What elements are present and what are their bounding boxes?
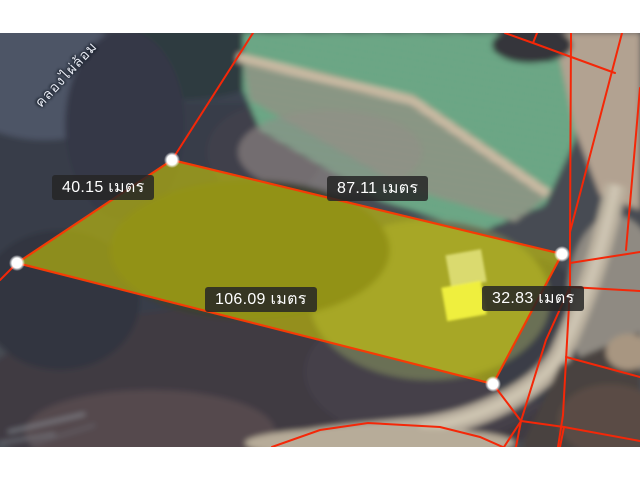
measurement-label-northeast: 87.11 เมตร [327, 176, 428, 201]
map-canvas [0, 0, 640, 480]
satellite-map-image: คลองไผ่ล้อม 40.15 เมตร 87.11 เมตร 106.09… [0, 0, 640, 480]
measurement-label-northwest: 40.15 เมตร [52, 175, 154, 200]
measurement-label-south: 106.09 เมตร [205, 287, 317, 312]
measurement-label-east: 32.83 เมตร [482, 286, 584, 311]
